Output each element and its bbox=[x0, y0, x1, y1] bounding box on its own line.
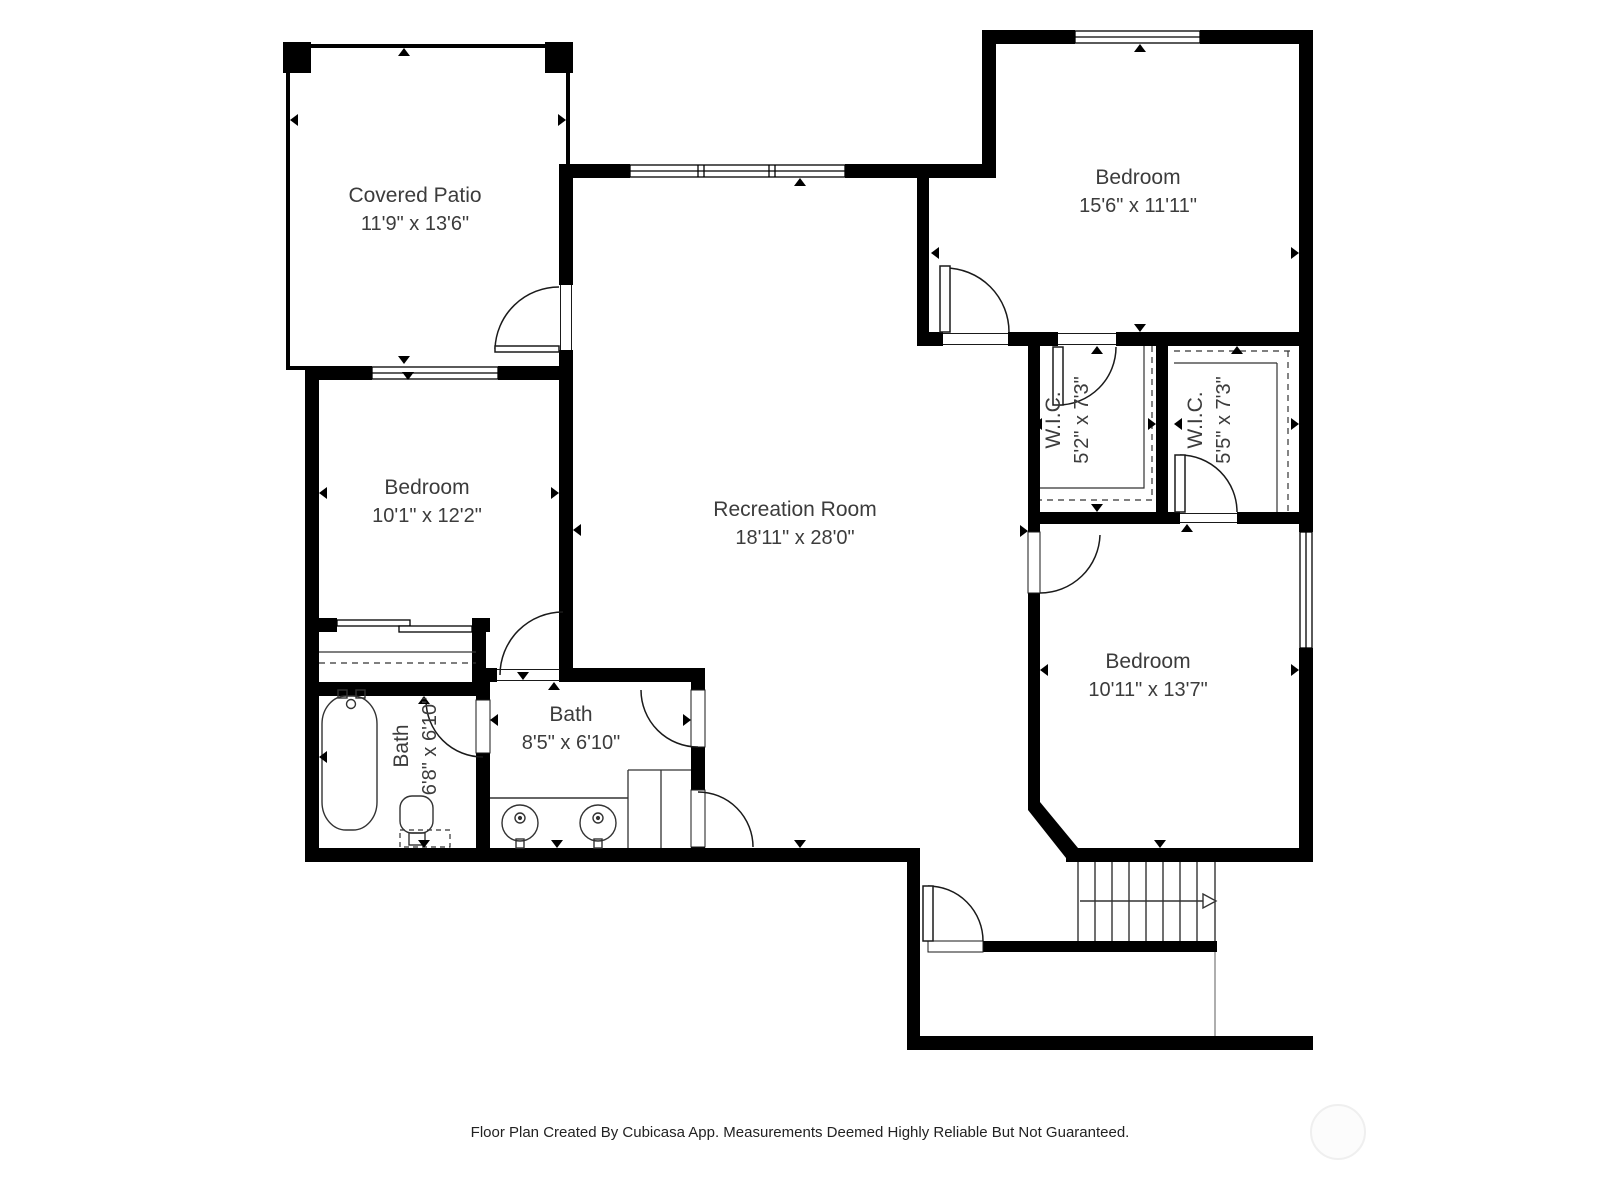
door-bedroom-left bbox=[497, 612, 563, 681]
wall bbox=[476, 753, 490, 862]
door-bath-middle bbox=[641, 690, 705, 747]
room-label-bedroom-top-right: Bedroom 15'6" x 11'11" bbox=[1079, 164, 1197, 220]
room-name: Bath bbox=[522, 701, 621, 729]
wall bbox=[982, 30, 996, 178]
room-label-wic-left: W.I.C. 5'2" x 7'3" bbox=[1040, 376, 1096, 463]
window-bedroom-top-right bbox=[1075, 31, 1200, 43]
room-dims: 5'2" x 7'3" bbox=[1068, 376, 1096, 463]
room-dims: 15'6" x 11'11" bbox=[1079, 192, 1197, 220]
room-dims: 18'11" x 28'0" bbox=[713, 524, 876, 552]
room-name: Recreation Room bbox=[713, 496, 876, 524]
window-bedroom-left bbox=[372, 367, 498, 379]
wall bbox=[1299, 648, 1313, 862]
wall bbox=[1028, 512, 1180, 524]
room-label-covered-patio: Covered Patio 11'9" x 13'6" bbox=[348, 182, 481, 238]
room-label-wic-right: W.I.C. 5'5" x 7'3" bbox=[1182, 376, 1238, 463]
wall bbox=[982, 30, 1075, 44]
door-lower-room bbox=[923, 886, 983, 952]
room-name: Bedroom bbox=[1079, 164, 1197, 192]
wall bbox=[559, 164, 630, 178]
wall bbox=[907, 1036, 1313, 1050]
door-bath-vestibule bbox=[691, 790, 753, 847]
room-label-bedroom-left: Bedroom 10'1" x 12'2" bbox=[372, 474, 482, 530]
patio-wall-bottom-stub bbox=[286, 366, 308, 370]
wall bbox=[317, 618, 337, 632]
toilet bbox=[400, 796, 450, 847]
room-dims: 10'11" x 13'7" bbox=[1088, 676, 1207, 704]
wall bbox=[1156, 346, 1168, 512]
fixtures bbox=[319, 346, 1294, 848]
room-dims: 5'5" x 7'3" bbox=[1210, 376, 1238, 463]
room-label-bath-middle: Bath 8'5" x 6'10" bbox=[522, 701, 621, 757]
room-name: W.I.C. bbox=[1040, 376, 1068, 463]
wall bbox=[691, 847, 705, 862]
wall bbox=[305, 848, 920, 862]
wall bbox=[983, 941, 1217, 952]
patio-wall-left bbox=[286, 44, 290, 366]
wall bbox=[845, 164, 982, 178]
patio-column-right bbox=[545, 42, 573, 73]
room-label-recreation-room: Recreation Room 18'11" x 28'0" bbox=[713, 496, 876, 552]
room-dims: 11'9" x 13'6" bbox=[348, 210, 481, 238]
door-wic-right bbox=[1175, 455, 1237, 523]
room-name: Bedroom bbox=[372, 474, 482, 502]
wall bbox=[305, 366, 319, 862]
sink bbox=[502, 805, 538, 848]
room-label-bedroom-bottom-right: Bedroom 10'11" x 13'7" bbox=[1088, 648, 1207, 704]
window-bedroom-bottom-right bbox=[1300, 532, 1312, 648]
wall bbox=[917, 332, 943, 346]
wall bbox=[559, 350, 573, 682]
wall bbox=[480, 668, 497, 682]
footer-disclaimer: Floor Plan Created By Cubicasa App. Meas… bbox=[0, 1124, 1600, 1141]
wall bbox=[907, 848, 920, 1050]
room-name: Bedroom bbox=[1088, 648, 1207, 676]
sink bbox=[580, 805, 616, 848]
closet-sliding-doors bbox=[337, 620, 472, 632]
wall bbox=[498, 366, 573, 380]
wall bbox=[1028, 593, 1040, 810]
wall bbox=[476, 682, 490, 700]
patio-column-left bbox=[283, 42, 311, 73]
wall bbox=[1116, 332, 1313, 346]
wall bbox=[559, 164, 573, 285]
wall bbox=[305, 682, 490, 696]
stairs-direction-arrow bbox=[1080, 894, 1216, 908]
wall bbox=[1028, 346, 1040, 532]
room-name: W.I.C. bbox=[1182, 376, 1210, 463]
door-bedroom-top-right bbox=[940, 266, 1009, 345]
wall bbox=[691, 747, 705, 790]
room-name: Bath bbox=[388, 697, 416, 796]
room-dims: 10'1" x 12'2" bbox=[372, 502, 482, 530]
floor-plan-drawing bbox=[0, 0, 1600, 1200]
bathtub bbox=[322, 690, 377, 830]
room-dims: 8'5" x 6'10" bbox=[522, 729, 621, 757]
floor-plan: Covered Patio 11'9" x 13'6" Bedroom 15'6… bbox=[0, 0, 1600, 1200]
room-dims: 6'8" x 6'10" bbox=[416, 697, 444, 796]
room-label-bath-left: Bath 6'8" x 6'10" bbox=[388, 697, 444, 796]
door-patio bbox=[495, 285, 572, 352]
wall bbox=[305, 366, 372, 380]
wall bbox=[1200, 30, 1313, 44]
room-name: Covered Patio bbox=[348, 182, 481, 210]
wall bbox=[1237, 512, 1313, 524]
wall bbox=[1008, 332, 1058, 346]
wall bbox=[560, 668, 703, 682]
closet-shelf bbox=[319, 652, 476, 663]
patio-wall-top bbox=[286, 44, 573, 48]
linen-closet bbox=[628, 770, 691, 848]
wall bbox=[691, 668, 705, 690]
wall bbox=[1299, 30, 1313, 532]
wall bbox=[917, 178, 929, 332]
window-recreation-top bbox=[630, 165, 845, 177]
wall bbox=[1066, 848, 1313, 862]
door-bedroom-bottom-right bbox=[1028, 532, 1100, 593]
